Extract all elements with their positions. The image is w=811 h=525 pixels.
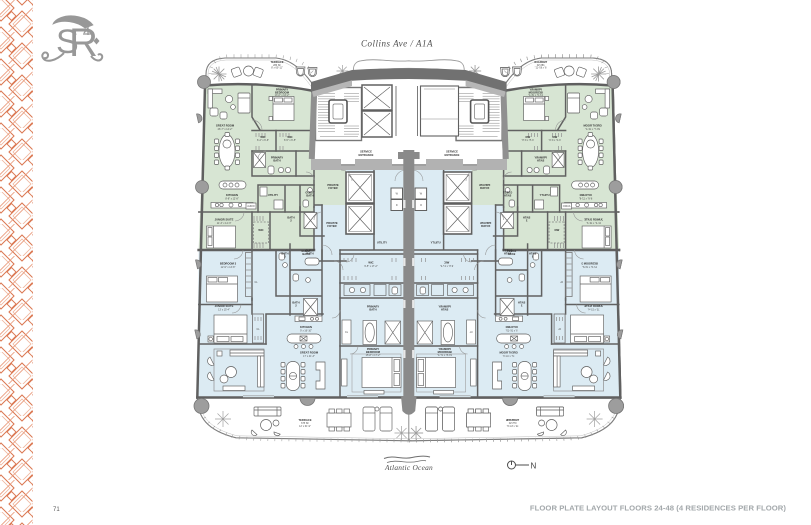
svg-text:N: N (531, 461, 537, 470)
svg-text:8' x 60'-11": 8' x 60'-11" (271, 66, 283, 69)
svg-text:ENTRANCE: ENTRANCE (359, 153, 374, 157)
svg-text:13' x 15'-4": 13' x 15'-4" (218, 308, 230, 311)
svg-text:UTILITY: UTILITY (377, 241, 387, 245)
svg-text:WIC: WIC (258, 228, 263, 232)
svg-text:9'-5" x 17'-2": 9'-5" x 17'-2" (364, 265, 378, 268)
svg-text:71: 71 (53, 507, 60, 513)
svg-text:FOYER: FOYER (327, 224, 336, 228)
svg-text:8'-8" x 12'-8": 8'-8" x 12'-8" (225, 197, 239, 200)
svg-text:AUDIO: AUDIO (247, 205, 255, 208)
svg-text:15'-8" x 17'-2": 15'-8" x 17'-2" (366, 354, 381, 357)
svg-text:SERVICE: SERVICE (446, 150, 458, 154)
svg-text:UTILITY: UTILITY (268, 193, 278, 197)
svg-text:26'-7" x 14'-2": 26'-7" x 14'-2" (218, 128, 233, 131)
svg-text:11'-4" x 14'-3": 11'-4" x 14'-3" (217, 222, 232, 225)
svg-text:SERVICE: SERVICE (360, 150, 372, 154)
svg-text:12'-9" x 13'-8": 12'-9" x 13'-8" (221, 266, 236, 269)
svg-text:Collins Ave / A1A: Collins Ave / A1A (361, 39, 433, 49)
svg-text:BATH: BATH (369, 308, 376, 312)
svg-text:ENTRANCE: ENTRANCE (445, 153, 460, 157)
svg-text:13'-0" x 16'-2": 13'-0" x 16'-2" (275, 94, 290, 97)
svg-text:FLOOR PLATE LAYOUT FLOORS 24-4: FLOOR PLATE LAYOUT FLOORS 24-48 (4 RESID… (530, 504, 786, 513)
svg-text:17' x 41'-3": 17' x 41'-3" (303, 355, 315, 358)
svg-text:6'-4" x 6'-6": 6'-4" x 6'-6" (257, 139, 269, 142)
svg-text:9' x 16'-10": 9' x 16'-10" (300, 329, 312, 332)
svg-text:Atlantic Ocean: Atlantic Ocean (384, 463, 433, 472)
svg-text:FOYER: FOYER (328, 186, 337, 190)
svg-text:12' x 61'-9": 12' x 61'-9" (299, 425, 311, 428)
svg-text:D: D (396, 204, 398, 207)
svg-text:BATH: BATH (302, 252, 309, 256)
svg-text:6'-5" x 6'-5": 6'-5" x 6'-5" (284, 139, 296, 142)
svg-text:BATH: BATH (306, 193, 313, 197)
svg-text:BATH: BATH (273, 158, 280, 162)
